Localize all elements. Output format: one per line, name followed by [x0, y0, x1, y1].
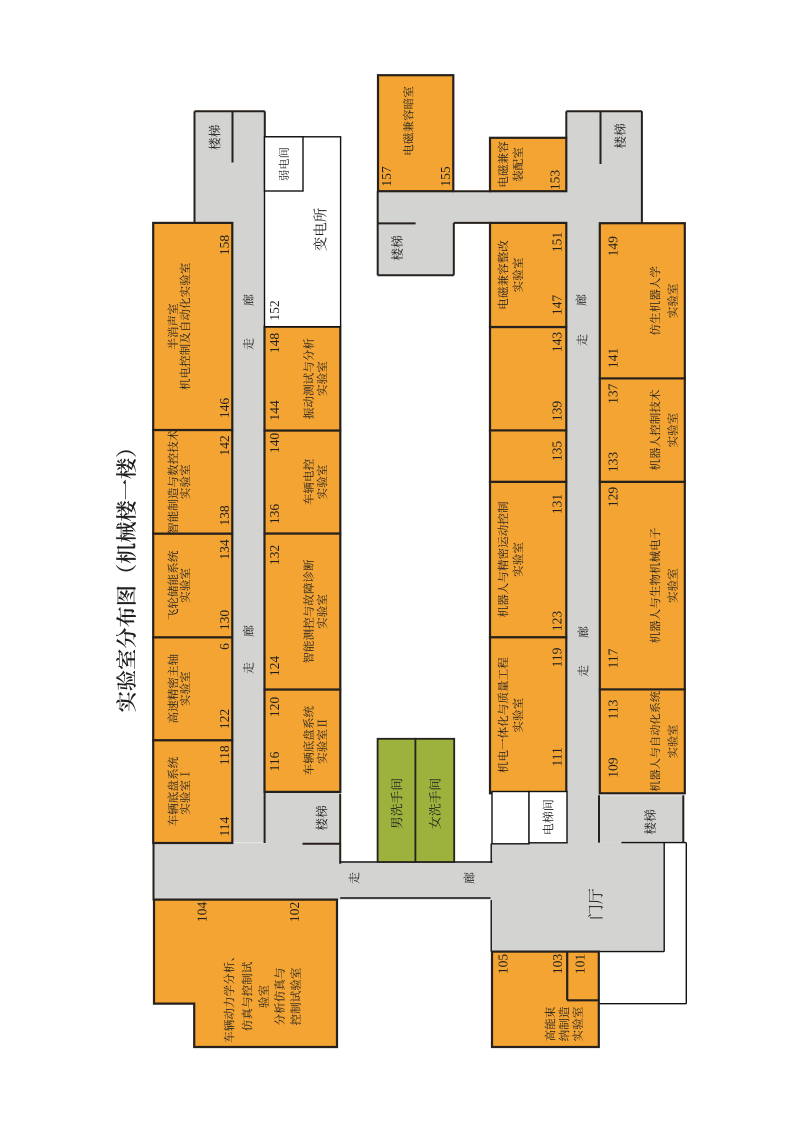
svg-text:152: 152: [267, 300, 282, 320]
svg-text:140: 140: [267, 433, 282, 454]
svg-text:117: 117: [605, 648, 620, 668]
svg-text:109: 109: [605, 757, 620, 778]
svg-text:102: 102: [287, 902, 302, 922]
svg-text:124: 124: [267, 656, 282, 677]
svg-text:144: 144: [267, 400, 282, 421]
svg-text:155: 155: [438, 166, 453, 187]
svg-text:105: 105: [496, 954, 511, 975]
svg-text:153: 153: [548, 170, 563, 191]
svg-text:116: 116: [267, 751, 282, 771]
svg-text:113: 113: [605, 699, 620, 719]
svg-text:101: 101: [573, 954, 588, 974]
svg-text:104: 104: [195, 902, 210, 923]
svg-text:147: 147: [550, 295, 565, 316]
svg-text:158: 158: [217, 235, 232, 256]
svg-text:138: 138: [217, 505, 232, 526]
svg-text:111: 111: [550, 747, 565, 766]
svg-text:122: 122: [217, 709, 232, 729]
svg-text:120: 120: [267, 697, 282, 718]
svg-text:103: 103: [550, 954, 565, 975]
svg-text:148: 148: [267, 333, 282, 354]
svg-text:131: 131: [550, 494, 565, 514]
svg-text:146: 146: [217, 398, 232, 419]
svg-text:143: 143: [550, 332, 565, 353]
svg-text:136: 136: [267, 504, 282, 525]
svg-text:141: 141: [605, 348, 620, 368]
svg-text:130: 130: [217, 610, 232, 631]
svg-text:139: 139: [550, 401, 565, 422]
svg-text:133: 133: [605, 452, 620, 473]
svg-text:134: 134: [217, 539, 232, 560]
svg-text:132: 132: [267, 545, 282, 565]
svg-text:123: 123: [550, 611, 565, 632]
svg-text:119: 119: [550, 647, 565, 667]
svg-text:151: 151: [550, 232, 565, 252]
svg-text:157: 157: [379, 166, 394, 187]
svg-text:135: 135: [550, 441, 565, 462]
svg-text:114: 114: [217, 816, 232, 836]
svg-text:149: 149: [605, 236, 620, 257]
svg-text:129: 129: [605, 487, 620, 508]
svg-text:142: 142: [217, 435, 232, 455]
svg-text:137: 137: [605, 383, 620, 404]
svg-text:6: 6: [217, 643, 232, 650]
svg-text:118: 118: [217, 745, 232, 765]
